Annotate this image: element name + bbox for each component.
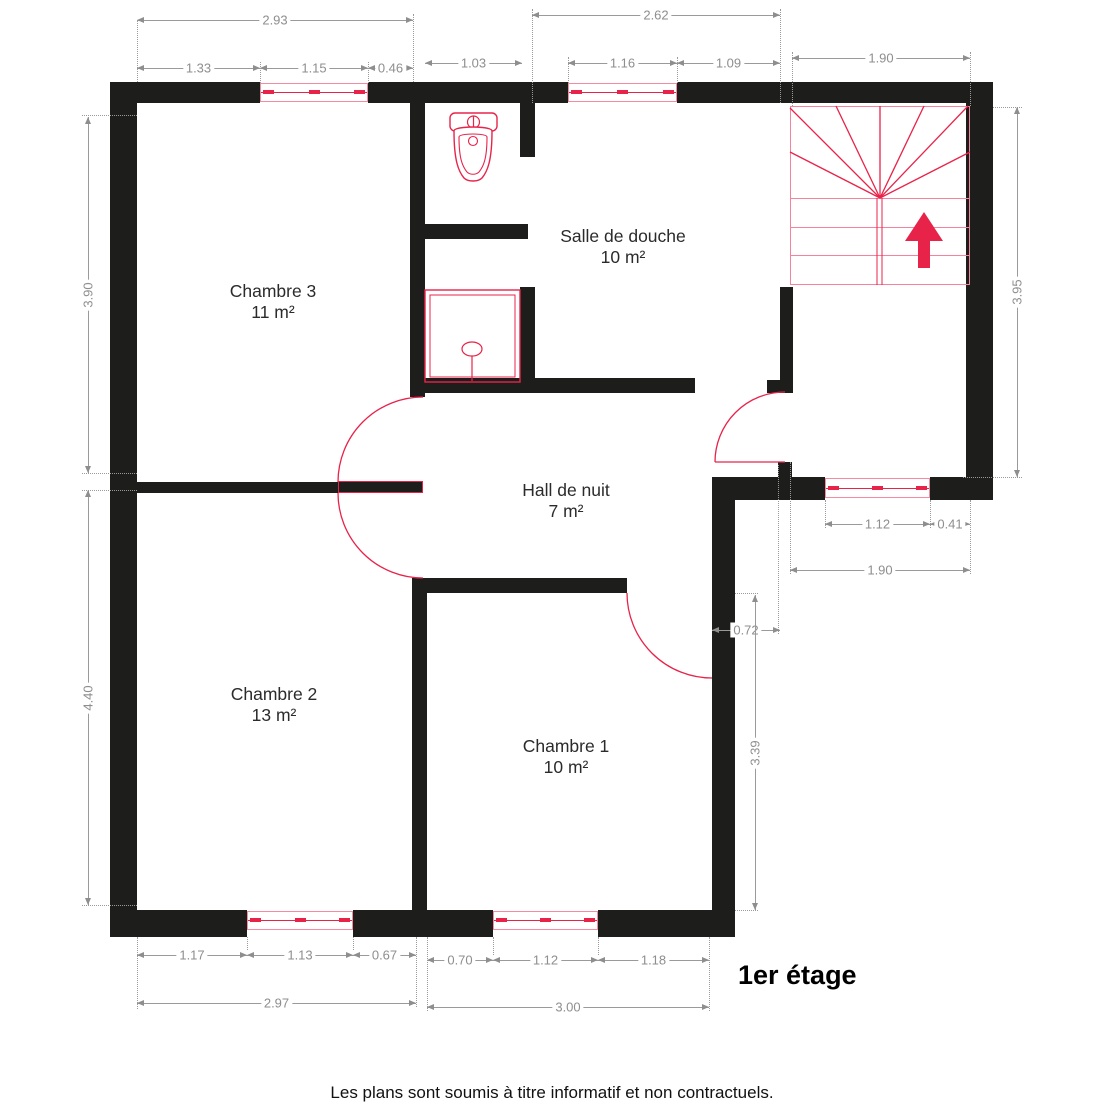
dimension-label: 1.18	[598, 952, 709, 968]
dimension-label: 1.09	[677, 55, 780, 71]
dim-arrowhead	[137, 952, 144, 958]
dim-arrowhead	[409, 952, 416, 958]
window	[260, 83, 368, 102]
dim-value: 0.41	[934, 517, 965, 532]
dim-arrowhead	[1014, 470, 1020, 477]
dim-extension-line	[416, 937, 417, 1007]
room-label: Hall de nuit7 m²	[522, 480, 610, 522]
dim-arrowhead	[702, 1004, 709, 1010]
dim-arrowhead	[425, 60, 432, 66]
dim-extension-line	[970, 52, 971, 106]
dim-arrowhead	[515, 60, 522, 66]
dim-value: 2.62	[640, 8, 671, 23]
room-area: 10 m²	[560, 247, 686, 268]
dim-extension-line	[735, 593, 758, 594]
window-frame-dash	[617, 90, 628, 94]
window	[825, 478, 930, 498]
wall	[410, 103, 425, 397]
dim-value: 3.95	[1010, 276, 1025, 307]
dim-value: 3.00	[552, 1000, 583, 1015]
room-area: 11 m²	[230, 302, 317, 323]
dim-value: 1.12	[530, 953, 561, 968]
wall	[110, 910, 247, 937]
dimension-label: 2.93	[137, 12, 413, 28]
dimension-label: 1.33	[137, 60, 260, 76]
dim-extension-line	[709, 937, 710, 1011]
wall	[712, 477, 735, 937]
dim-value: 1.90	[865, 51, 896, 66]
stair-tread	[790, 227, 970, 228]
dimension-label: 1.03	[425, 55, 522, 71]
room-label: Chambre 110 m²	[523, 736, 610, 778]
dim-extension-line	[532, 9, 533, 103]
staircase-outline	[790, 106, 970, 285]
dim-arrowhead	[677, 60, 684, 66]
dim-extension-line	[963, 477, 1022, 478]
stair-tread	[790, 255, 970, 256]
dim-value: 0.70	[444, 953, 475, 968]
dim-value: 0.46	[375, 61, 406, 76]
room-area: 13 m²	[231, 705, 318, 726]
toilet-tank	[450, 113, 497, 131]
room-name: Hall de nuit	[522, 480, 610, 501]
floor-plan-canvas: 2.931.331.150.462.621.031.161.091.901.12…	[0, 0, 1104, 1104]
dim-extension-line	[413, 14, 414, 82]
dim-arrowhead	[752, 595, 758, 602]
wall	[137, 482, 338, 493]
dim-extension-line	[778, 465, 779, 634]
dimension-label: 0.70	[427, 952, 493, 968]
wall	[412, 578, 427, 910]
dim-arrowhead	[427, 1004, 434, 1010]
dim-arrowhead	[85, 117, 91, 124]
dim-value: 3.90	[81, 279, 96, 310]
wall	[520, 103, 535, 157]
shower-head	[462, 342, 482, 356]
window-frame-dash	[250, 918, 261, 922]
door-chambre2-swing-arc	[338, 493, 423, 578]
window-frame-dash	[584, 918, 595, 922]
room-label: Salle de douche10 m²	[560, 226, 686, 268]
window-frame-dash	[354, 90, 365, 94]
window	[247, 911, 353, 930]
dim-extension-line	[82, 473, 137, 474]
dim-value: 3.39	[748, 737, 763, 768]
dim-extension-line	[780, 9, 781, 103]
dimension-label: 3.90	[80, 117, 96, 473]
dim-value: 1.13	[284, 948, 315, 963]
window-frame-dash	[309, 90, 320, 94]
window-frame-dash	[571, 90, 582, 94]
wall	[598, 910, 712, 937]
dim-arrowhead	[247, 952, 254, 958]
dim-arrowhead	[486, 957, 493, 963]
door-stairs-swing-arc	[715, 392, 785, 462]
dim-value: 1.09	[713, 56, 744, 71]
dimension-label: 1.16	[568, 55, 677, 71]
dim-value: 1.12	[862, 517, 893, 532]
dim-arrowhead	[752, 903, 758, 910]
dim-arrowhead	[702, 957, 709, 963]
dim-extension-line	[790, 462, 791, 574]
dim-arrowhead	[493, 957, 500, 963]
room-name: Chambre 1	[523, 736, 610, 757]
dimension-label: 1.15	[260, 60, 368, 76]
room-label: Chambre 311 m²	[230, 281, 317, 323]
dim-arrowhead	[240, 952, 247, 958]
room-label: Chambre 213 m²	[231, 684, 318, 726]
room-name: Chambre 3	[230, 281, 317, 302]
dim-arrowhead	[790, 567, 797, 573]
dim-value: 1.16	[607, 56, 638, 71]
dim-value: 1.18	[638, 953, 669, 968]
room-area: 10 m²	[523, 757, 610, 778]
window-frame-dash	[916, 486, 927, 490]
wall	[677, 82, 993, 103]
dimension-label: 0.46	[368, 60, 413, 76]
dim-value: 1.90	[864, 563, 895, 578]
dim-extension-line	[735, 910, 758, 911]
dim-arrowhead	[773, 12, 780, 18]
toilet-flush-button	[468, 116, 480, 128]
dim-arrowhead	[792, 55, 799, 61]
window-frame-dash	[295, 918, 306, 922]
dim-value: 1.17	[176, 948, 207, 963]
dim-arrowhead	[85, 898, 91, 905]
dim-value: 2.93	[259, 13, 290, 28]
dim-value: 4.40	[81, 682, 96, 713]
dim-value: 0.67	[369, 948, 400, 963]
dim-arrowhead	[773, 627, 780, 633]
dim-arrowhead	[568, 60, 575, 66]
dim-arrowhead	[532, 12, 539, 18]
window	[493, 911, 598, 930]
window-frame-dash	[339, 918, 350, 922]
dim-arrowhead	[361, 65, 368, 71]
wall	[410, 224, 528, 239]
dim-arrowhead	[346, 952, 353, 958]
wall	[427, 910, 493, 937]
wall	[368, 82, 568, 103]
dim-value: 1.15	[298, 61, 329, 76]
dim-arrowhead	[353, 952, 360, 958]
dim-arrowhead	[137, 17, 144, 23]
window-frame-dash	[663, 90, 674, 94]
toilet-drain	[469, 137, 478, 146]
dim-arrowhead	[406, 65, 413, 71]
dim-arrowhead	[963, 55, 970, 61]
dim-arrowhead	[85, 490, 91, 497]
dimension-label: 2.62	[532, 7, 780, 23]
wall	[353, 910, 427, 937]
dimension-label: 1.90	[792, 50, 970, 66]
wall	[930, 477, 993, 500]
dim-arrowhead	[825, 521, 832, 527]
dim-arrowhead	[406, 17, 413, 23]
dim-extension-line	[970, 500, 971, 574]
room-name: Chambre 2	[231, 684, 318, 705]
dimension-label: 3.39	[747, 595, 763, 910]
dimension-label: 0.67	[353, 947, 416, 963]
dim-value: 1.33	[183, 61, 214, 76]
toilet-bowl-outer	[454, 127, 492, 181]
dimension-label: 1.90	[790, 562, 970, 578]
disclaimer-text: Les plans sont soumis à titre informatif…	[0, 1083, 1104, 1103]
dimension-label: 1.12	[825, 516, 930, 532]
door-leaf	[338, 481, 423, 493]
shower-tray-inner	[430, 295, 515, 377]
dim-arrowhead	[773, 60, 780, 66]
dim-arrowhead	[591, 957, 598, 963]
dim-arrowhead	[137, 65, 144, 71]
toilet-bowl-inner	[459, 134, 487, 174]
window	[568, 83, 677, 102]
dim-arrowhead	[1014, 107, 1020, 114]
room-area: 7 m²	[522, 501, 610, 522]
wall	[410, 378, 695, 393]
dim-arrowhead	[598, 957, 605, 963]
dim-value: 2.97	[261, 996, 292, 1011]
dim-arrowhead	[923, 521, 930, 527]
dimension-label: 1.12	[493, 952, 598, 968]
dimension-label: 3.00	[427, 999, 709, 1015]
window-frame-dash	[872, 486, 883, 490]
window-frame-dash	[496, 918, 507, 922]
window-frame-dash	[828, 486, 839, 490]
wall	[780, 287, 793, 393]
dim-arrowhead	[712, 627, 719, 633]
dim-arrowhead	[670, 60, 677, 66]
stair-tread	[790, 198, 970, 199]
wall	[427, 578, 627, 593]
dim-arrowhead	[409, 1000, 416, 1006]
dim-arrowhead	[85, 466, 91, 473]
dimension-label: 0.41	[930, 516, 970, 532]
dimension-label: 2.97	[137, 995, 416, 1011]
dim-arrowhead	[137, 1000, 144, 1006]
dimension-label: 4.40	[80, 490, 96, 905]
dim-extension-line	[82, 115, 137, 116]
window-frame-dash	[263, 90, 274, 94]
window-frame-dash	[540, 918, 551, 922]
dimension-label: 3.95	[1009, 107, 1025, 477]
dim-arrowhead	[253, 65, 260, 71]
wall	[966, 82, 993, 500]
dim-extension-line	[82, 905, 137, 906]
door-chambre3-swing-arc	[338, 397, 423, 482]
dimension-label: 1.17	[137, 947, 247, 963]
dimension-label: 0.72	[712, 622, 780, 638]
dim-arrowhead	[260, 65, 267, 71]
floor-title: 1er étage	[738, 960, 857, 991]
wall	[110, 82, 137, 937]
dim-value: 1.03	[458, 56, 489, 71]
dimension-label: 1.13	[247, 947, 353, 963]
room-name: Salle de douche	[560, 226, 686, 247]
shower-tray-outer	[425, 290, 520, 382]
dim-arrowhead	[963, 567, 970, 573]
dim-arrowhead	[427, 957, 434, 963]
door-chambre1-swing-arc	[627, 593, 712, 678]
